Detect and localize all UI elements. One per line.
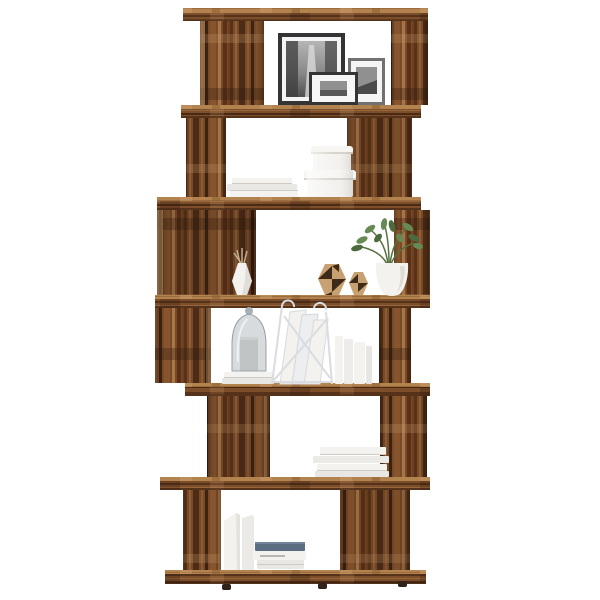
magazine-file-boxes bbox=[224, 513, 254, 570]
board-6 bbox=[160, 477, 430, 490]
board-5 bbox=[185, 383, 430, 396]
cloche-base-books bbox=[222, 372, 274, 384]
tier6-left-panel bbox=[183, 490, 221, 570]
flat-book-stack bbox=[227, 178, 298, 197]
round-storage-boxes bbox=[304, 146, 356, 197]
product-photo-stage bbox=[0, 0, 600, 600]
tier4-right-panel bbox=[379, 308, 411, 383]
bottom-book-stack bbox=[253, 542, 306, 569]
board-bottom bbox=[165, 570, 426, 584]
white-mat-frame bbox=[309, 72, 358, 105]
tier2-right-panel bbox=[347, 118, 412, 197]
board-top bbox=[183, 8, 428, 21]
tier5-book-stack bbox=[313, 447, 389, 477]
tier5-left-panel bbox=[207, 396, 270, 477]
tier5-right-panel bbox=[380, 396, 427, 477]
bookshelf-product-photo bbox=[0, 0, 600, 600]
tier1-left-panel bbox=[200, 21, 264, 105]
board-2 bbox=[181, 105, 421, 118]
tier2-left-panel bbox=[186, 118, 226, 197]
tier6-right-panel bbox=[340, 490, 410, 570]
tier4-left-panel bbox=[155, 308, 211, 383]
board-3 bbox=[157, 197, 421, 210]
tier1-right-panel bbox=[391, 21, 428, 105]
